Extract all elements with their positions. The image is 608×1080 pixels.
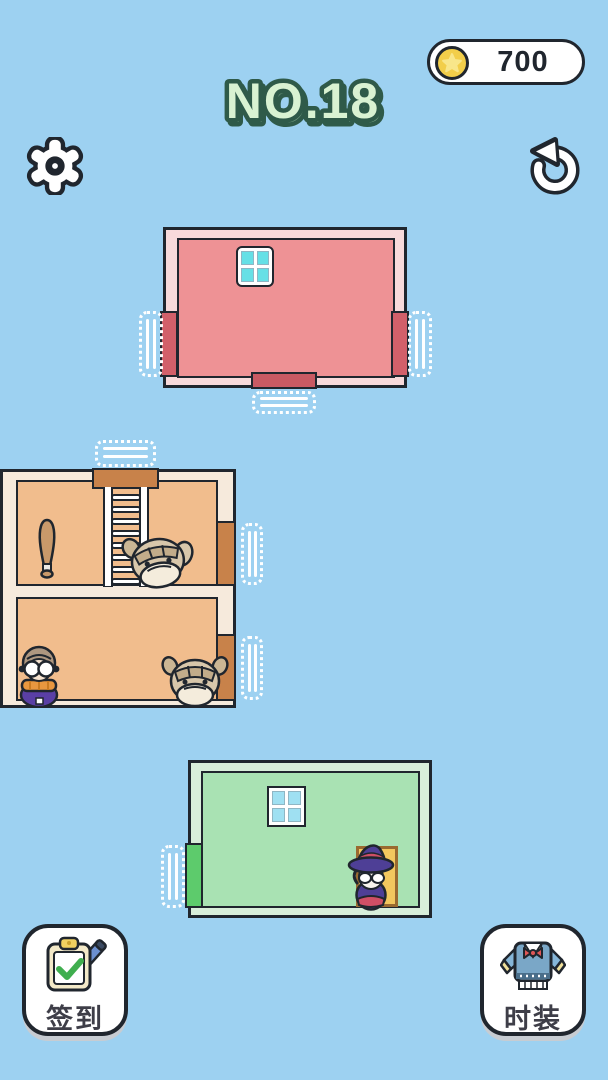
level-title: NO.18 NO.18 [0,68,608,143]
pink-room-right-door[interactable] [391,311,409,377]
pink-room-bottom-door-indicator[interactable] [252,391,316,414]
settings-button[interactable] [26,137,84,200]
pink-room-bottom-door[interactable] [251,372,317,389]
level-title-text: NO.18 [226,73,381,129]
tan-house-lower-door-indicator[interactable] [241,636,263,700]
pink-room-right-door-indicator[interactable] [408,311,432,377]
gear-icon [26,182,84,199]
baseball-bat[interactable] [33,517,61,584]
restart-button[interactable] [521,136,585,203]
pink-room-interior [177,238,395,378]
checkin-label: 签到 [46,997,104,1036]
grandma[interactable] [10,641,68,712]
restart-icon [521,185,585,202]
green-room-window [267,786,306,827]
tan-house-upper-right-door[interactable] [216,521,236,586]
witch[interactable] [344,838,398,917]
bulldog-lower[interactable] [160,650,230,715]
fashion-button[interactable]: 时装 [480,924,586,1036]
checkin-button[interactable]: 签到 [22,924,128,1036]
game-screen: 700 NO.18 NO.18 [0,0,608,1080]
tan-house-roof-door[interactable] [92,468,159,489]
tan-house-upper-door-indicator[interactable] [241,523,263,585]
green-room-left-door[interactable] [185,843,203,908]
tan-house-roof-door-indicator[interactable] [95,440,156,467]
pink-room-window [236,246,274,287]
bulldog-upper[interactable] [113,521,205,601]
clipboard-check-icon [42,936,108,999]
sweater-icon [500,936,566,999]
fashion-label: 时装 [504,997,562,1036]
pink-room-left-door-indicator[interactable] [139,311,163,377]
green-room-left-door-indicator[interactable] [161,845,185,908]
